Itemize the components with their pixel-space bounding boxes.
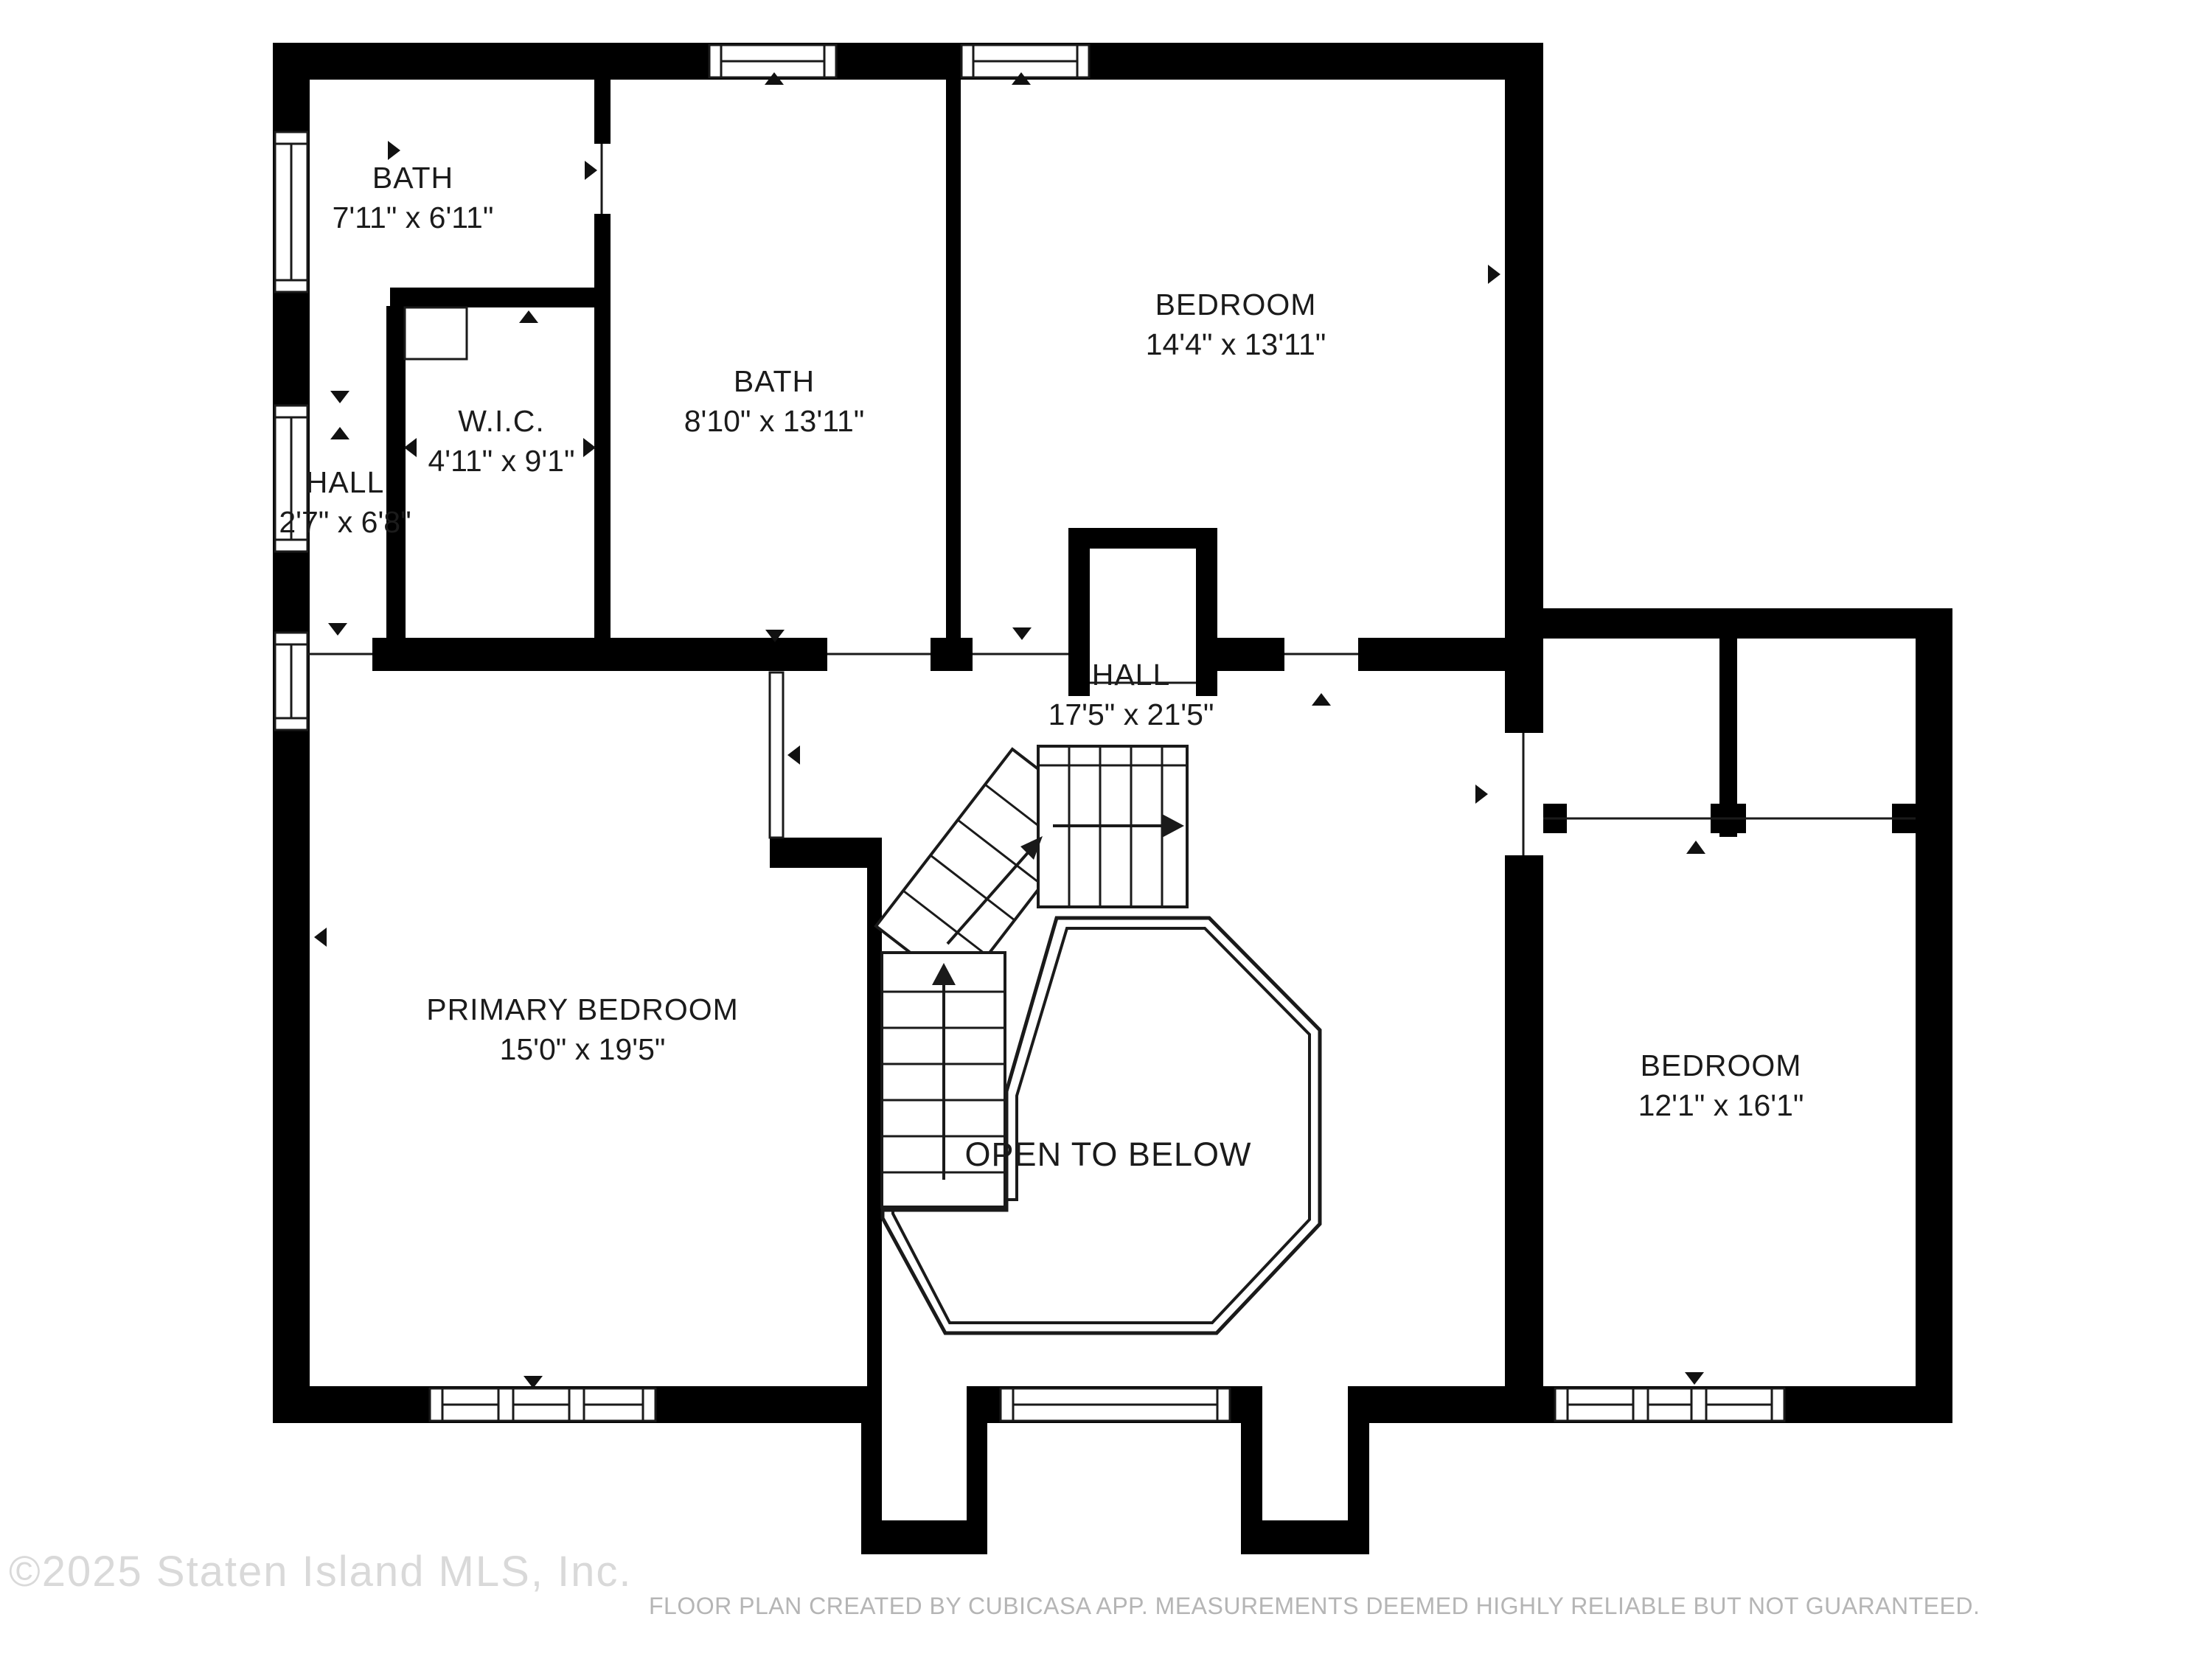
door-arrow-icon — [583, 438, 596, 457]
room-name: HALL — [1048, 655, 1214, 695]
door-arrow-icon — [1012, 627, 1032, 640]
room-name: BEDROOM — [1638, 1046, 1804, 1085]
door-arrow-icon — [330, 427, 349, 439]
room-dims: 7'11" x 6'11" — [333, 198, 494, 237]
door-swing-icons — [314, 72, 1705, 1388]
room-dims: 4'11" x 9'1" — [428, 441, 574, 481]
room-label-hall-small: HALL 2'7" x 6'8" — [279, 462, 411, 542]
room-name: HALL — [279, 462, 411, 502]
floor-plan-drawing — [0, 0, 2212, 1659]
room-dims: 17'5" x 21'5" — [1048, 695, 1214, 734]
room-label-bath-small: BATH 7'11" x 6'11" — [333, 158, 494, 237]
window-symbol — [961, 45, 1089, 77]
door-arrow-icon — [787, 745, 800, 765]
room-name: BATH — [333, 158, 494, 198]
window-symbol — [709, 45, 836, 77]
floor-plan-page: BATH 7'11" x 6'11" W.I.C. 4'11" x 9'1" H… — [0, 0, 2212, 1659]
room-dims: 15'0" x 19'5" — [426, 1029, 739, 1069]
door-arrow-icon — [404, 438, 417, 457]
window-symbol — [1555, 1388, 1784, 1421]
door-arrow-icon — [1685, 1372, 1704, 1385]
room-dims: 14'4" x 13'11" — [1146, 324, 1326, 364]
copyright-watermark: ©2025 Staten Island MLS, Inc. — [9, 1547, 633, 1596]
room-dims: 8'10" x 13'11" — [684, 401, 865, 441]
door-arrow-icon — [519, 310, 538, 323]
door-arrow-icon — [1312, 693, 1331, 706]
room-label-wic: W.I.C. 4'11" x 9'1" — [428, 401, 574, 481]
door-arrow-icon — [1686, 841, 1705, 854]
fixture-box — [405, 307, 467, 359]
door-arrow-icon — [1475, 785, 1488, 804]
window-symbol — [1001, 1388, 1230, 1421]
door-arrow-icon — [328, 623, 347, 636]
room-label-primary: PRIMARY BEDROOM 15'0" x 19'5" — [426, 990, 739, 1069]
room-name: BEDROOM — [1146, 285, 1326, 324]
window-symbol — [275, 132, 307, 292]
room-label-bath-main: BATH 8'10" x 13'11" — [684, 361, 865, 441]
window-symbol — [430, 1388, 655, 1421]
window-symbol — [275, 633, 307, 730]
door-leaf — [770, 672, 783, 838]
room-dims: 2'7" x 6'8" — [279, 502, 411, 542]
room-dims: 12'1" x 16'1" — [1638, 1085, 1804, 1125]
room-label-bedroom-top: BEDROOM 14'4" x 13'11" — [1146, 285, 1326, 364]
room-name: BATH — [684, 361, 865, 401]
door-arrow-icon — [314, 928, 327, 947]
room-name: W.I.C. — [428, 401, 574, 441]
room-name: PRIMARY BEDROOM — [426, 990, 739, 1029]
window-symbols — [275, 45, 1784, 1421]
disclaimer-text: FLOOR PLAN CREATED BY CUBICASA APP. MEAS… — [649, 1593, 1980, 1620]
door-arrow-icon — [330, 391, 349, 403]
door-arrow-icon — [585, 161, 597, 180]
open-to-below-label: OPEN TO BELOW — [965, 1135, 1252, 1174]
room-label-bedroom-right: BEDROOM 12'1" x 16'1" — [1638, 1046, 1804, 1125]
room-label-hall-main: HALL 17'5" x 21'5" — [1048, 655, 1214, 734]
door-arrow-icon — [1488, 265, 1500, 284]
